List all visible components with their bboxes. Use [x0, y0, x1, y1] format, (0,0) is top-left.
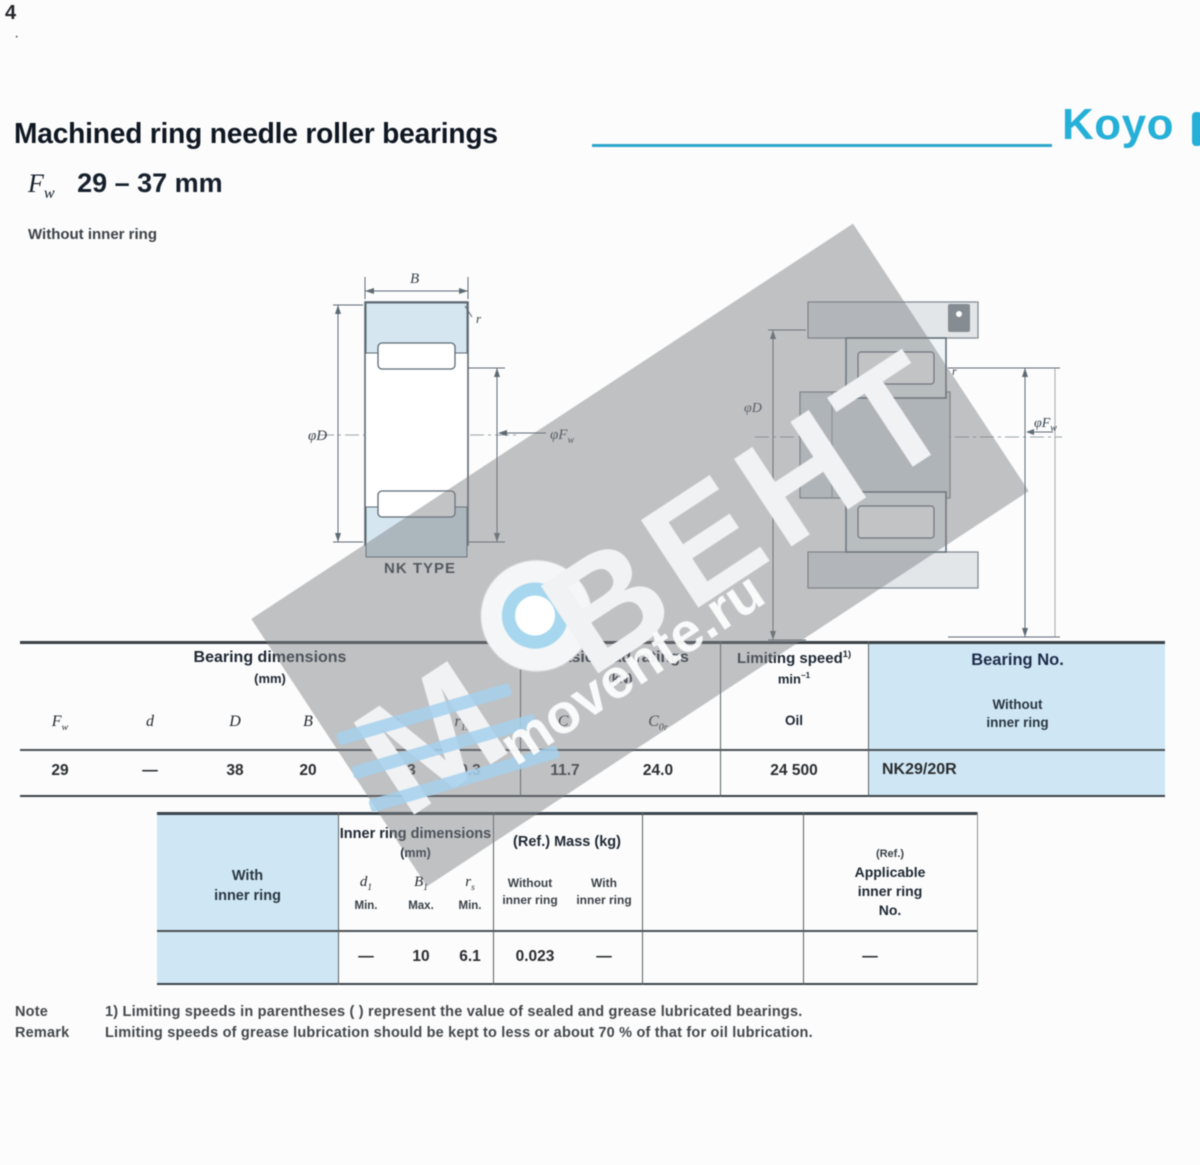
- bearing-no-subheader1: Without: [880, 697, 1155, 712]
- koyo-logo: Koyo: [1062, 100, 1174, 150]
- dim-label-Fw: φFw: [1034, 416, 1057, 434]
- dim-label-D: φD: [308, 428, 327, 444]
- footnote-note-text: 1) Limiting speeds in parentheses ( ) re…: [105, 1004, 802, 1020]
- col-header-oil: Oil: [764, 713, 824, 728]
- cell-ref-no: —: [835, 948, 905, 966]
- snap-ring-detail: [948, 304, 970, 332]
- size-range-value: 29 – 37 mm: [77, 168, 223, 198]
- needle-roller-top: [378, 343, 455, 369]
- col-note-b1: Max.: [396, 900, 446, 912]
- footnote-remark-label: Remark: [15, 1025, 105, 1041]
- bearing-no-subheader2: inner ring: [880, 715, 1155, 730]
- footnote-note-label: Note: [15, 1004, 105, 1020]
- col-header-d: d: [120, 713, 180, 731]
- footnote-remark-row: Remark Limiting speeds of grease lubrica…: [15, 1025, 1095, 1041]
- cell-D: 38: [205, 762, 265, 780]
- size-prefix: Fw: [28, 169, 55, 198]
- ref-header-line1: Applicable: [803, 864, 977, 880]
- col-header-d1: d1: [341, 874, 391, 893]
- table-header-separator: [157, 930, 978, 932]
- left-header-line1: With: [157, 868, 338, 884]
- table-border-bottom: [20, 795, 1165, 798]
- left-header-line2: inner ring: [157, 888, 338, 904]
- cell-b1: 10: [396, 948, 446, 966]
- mass-col2-line1: With: [571, 876, 637, 890]
- col-header-rs: rs: [445, 874, 495, 893]
- ref-header-line2: inner ring: [803, 883, 977, 899]
- table-border-right: [977, 812, 978, 985]
- col-header-fw: Fw: [30, 713, 90, 733]
- catalog-page: 4 · Machined ring needle roller bearings…: [0, 0, 1200, 1165]
- dim-label-B: B: [410, 271, 419, 287]
- page-subtitle: Without inner ring: [28, 226, 157, 243]
- col-note-d1: Min.: [341, 900, 391, 912]
- page-title: Machined ring needle roller bearings: [14, 118, 498, 151]
- footnote-note-row: Note 1) Limiting speeds in parentheses (…: [15, 1004, 1095, 1020]
- footnote-remark-text: Limiting speeds of grease lubrication sh…: [105, 1025, 813, 1041]
- footnotes: Note 1) Limiting speeds in parentheses (…: [15, 1004, 1095, 1041]
- table-border-bottom: [157, 983, 978, 986]
- size-range-line: Fw 29 – 37 mm: [28, 168, 223, 203]
- mass-col1-line1: Without: [497, 876, 563, 890]
- cell-mass-without: 0.023: [500, 948, 570, 966]
- mass-col2-line2: inner ring: [567, 893, 641, 907]
- koyo-logo-cropped-mark: [1192, 112, 1200, 146]
- dim-label-r: r: [476, 311, 482, 326]
- cell-bearing-no: NK29/20R: [882, 761, 1102, 779]
- cell-d: —: [120, 762, 180, 780]
- cell-speed: 24 500: [749, 762, 839, 780]
- inner-ring-table: With inner ring Inner ring dimensions (m…: [157, 812, 978, 985]
- corner-mark: ·: [14, 28, 19, 46]
- group-header-mass: (Ref.) Mass (kg): [477, 834, 657, 850]
- column-divider: [868, 641, 869, 797]
- group-header-bearing-no: Bearing No.: [880, 651, 1155, 670]
- ref-header-line0: (Ref.): [803, 848, 977, 860]
- cell-mass-inner: —: [569, 948, 639, 966]
- mass-col1-line2: inner ring: [493, 893, 567, 907]
- cell-c0r: 24.0: [628, 762, 688, 780]
- cell-fw: 29: [30, 762, 90, 780]
- cell-rs: 6.1: [445, 948, 495, 966]
- cell-B: 20: [278, 762, 338, 780]
- table-border-top: [157, 812, 978, 815]
- title-rule: [592, 144, 1052, 147]
- col-header-D: D: [205, 713, 265, 731]
- ref-header-line3: No.: [803, 902, 977, 918]
- col-note-rs: Min.: [445, 900, 495, 912]
- corner-mark: 4: [5, 2, 16, 25]
- cell-d1: —: [341, 948, 391, 966]
